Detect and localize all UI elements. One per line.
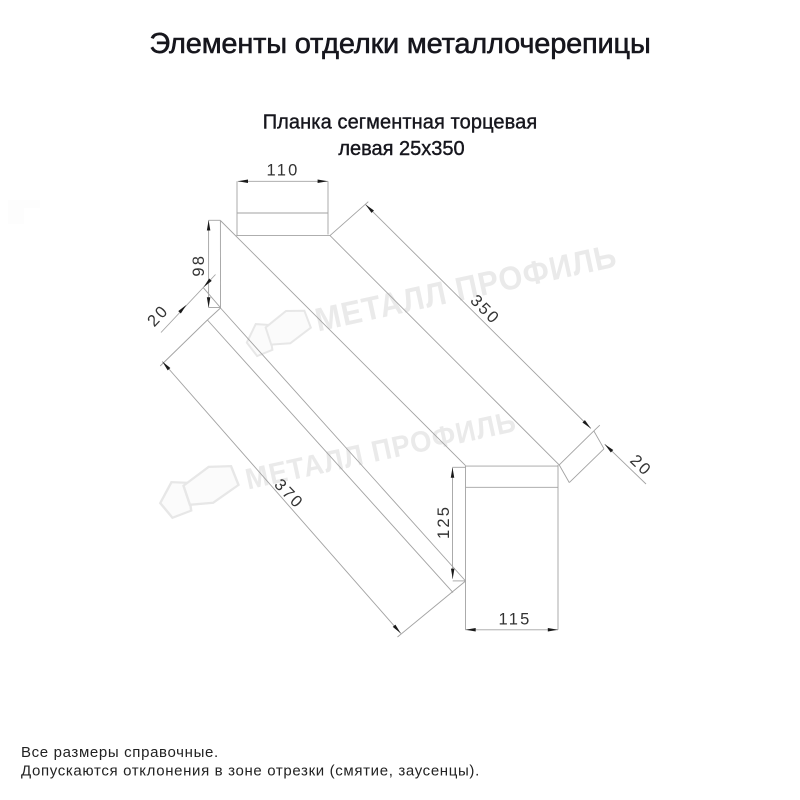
svg-text:115: 115 — [499, 611, 532, 629]
svg-text:125: 125 — [435, 505, 453, 539]
svg-text:Планка сегментная торцевая: Планка сегментная торцевая — [263, 112, 538, 134]
svg-text:Все размеры справочные.: Все размеры справочные. — [21, 744, 219, 761]
svg-text:Элементы отделки металлочерепи: Элементы отделки металлочерепицы — [149, 28, 650, 60]
svg-text:20: 20 — [626, 451, 655, 480]
svg-text:20: 20 — [144, 301, 173, 330]
svg-text:МЕТАЛЛ ПРОФИЛЬ: МЕТАЛЛ ПРОФИЛЬ — [312, 237, 621, 339]
svg-text:98: 98 — [190, 254, 208, 277]
svg-text:Допускаются отклонения в зоне: Допускаются отклонения в зоне отрезки (с… — [21, 763, 480, 780]
svg-text:110: 110 — [267, 162, 300, 180]
svg-text:левая 25х350: левая 25х350 — [338, 138, 464, 160]
